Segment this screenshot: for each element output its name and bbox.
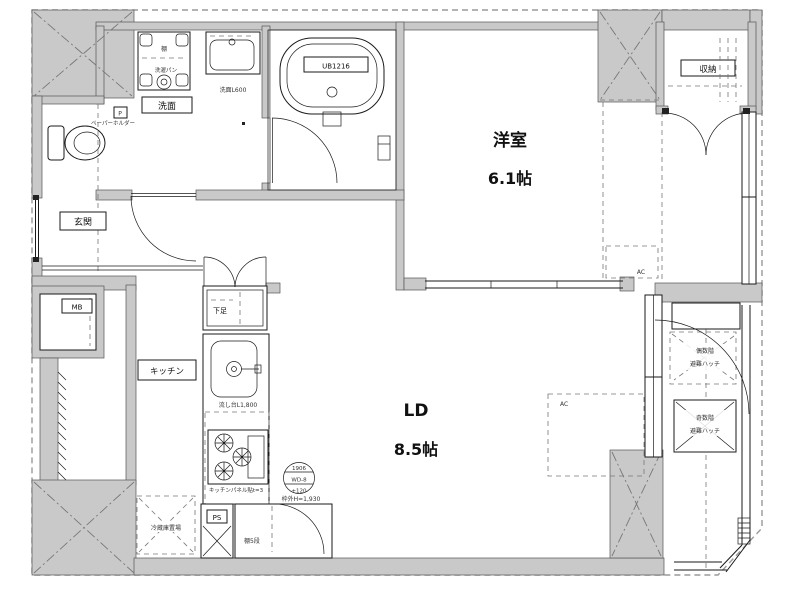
door-code-top: 1906 bbox=[292, 466, 306, 472]
washroom-door-swing bbox=[131, 196, 196, 261]
wall-balcony-top bbox=[655, 283, 762, 302]
toilet-tank bbox=[48, 126, 64, 160]
bath-controller bbox=[378, 136, 390, 160]
wall-bath-western bbox=[396, 22, 404, 290]
door-code-bottom: +120 bbox=[291, 489, 307, 495]
ac-position-west bbox=[606, 246, 658, 278]
wall-washroom-left bbox=[96, 26, 104, 104]
bath: UB1216 bbox=[268, 30, 396, 190]
wall-wash-bath-top bbox=[262, 26, 270, 118]
shelf-5tier-label: 棚5段 bbox=[244, 537, 260, 545]
meter-box: MB bbox=[40, 294, 96, 350]
hatch-even-line1: 偶数階 bbox=[696, 347, 714, 355]
living-dining: LD 8.5帖 AC bbox=[394, 295, 662, 476]
kitchen-panel-label: キッチンパネル貼t=3 bbox=[209, 486, 264, 494]
storage-closet: 収納 bbox=[662, 38, 750, 155]
western-room: 洋室 6.1帖 AC bbox=[425, 100, 756, 288]
paper-holder-abbr: P bbox=[118, 111, 122, 118]
floor-plan-page: 棚 洗濯パン 洗面 洗面L600 P ペーパーホルダー UB1216 bbox=[0, 0, 789, 593]
ps-label: PS bbox=[213, 514, 222, 522]
balcony-equipment-pad bbox=[672, 303, 740, 329]
toilet-bowl bbox=[65, 126, 105, 160]
storage-door-swing-l bbox=[664, 113, 706, 155]
balcony: 偶数階 避難ハッチ 奇数階 避難ハッチ bbox=[655, 302, 750, 572]
door-frame-height: 枠外H=1,930 bbox=[282, 495, 321, 503]
fridge-space-label: 冷蔵庫置場 bbox=[151, 524, 181, 532]
wall-toilet-top bbox=[32, 96, 104, 104]
bathtub-outer bbox=[280, 38, 384, 114]
hatch-even-line2: 避難ハッチ bbox=[690, 360, 720, 368]
hatch-odd-line1: 奇数階 bbox=[696, 414, 714, 422]
ld-label: LD bbox=[404, 401, 429, 421]
wall-ld-left bbox=[126, 285, 136, 485]
vent-grill-lines bbox=[738, 523, 750, 538]
wall-washroom-bottom-l bbox=[96, 190, 132, 200]
walls bbox=[32, 10, 762, 575]
kitchen-label: キッチン bbox=[150, 367, 184, 377]
washroom: 棚 洗濯パン 洗面 洗面L600 bbox=[138, 32, 260, 125]
shoe-door-swing-l bbox=[204, 257, 235, 287]
vent-grill bbox=[738, 518, 750, 544]
laundry-shelf-label: 棚 bbox=[161, 45, 167, 53]
toilet: P ペーパーホルダー bbox=[48, 104, 135, 272]
washroom-label: 洗面 bbox=[158, 100, 176, 112]
wall-top-band bbox=[96, 22, 662, 30]
mb-label: MB bbox=[72, 304, 83, 312]
ld-size: 8.5帖 bbox=[394, 440, 438, 459]
western-room-size: 6.1帖 bbox=[488, 169, 532, 188]
floor-drain-dot bbox=[242, 122, 245, 125]
hatch-odd-line2: 避難ハッチ bbox=[690, 427, 720, 435]
unit-bath-label: UB1216 bbox=[322, 63, 350, 71]
wall-left-corridor bbox=[40, 358, 58, 482]
door-code-mid: WD-8 bbox=[291, 478, 307, 484]
western-room-label: 洋室 bbox=[493, 130, 527, 151]
wall-partition-stub-l bbox=[404, 278, 426, 290]
bath-door-swing bbox=[272, 118, 337, 183]
railing-chamfer-outer bbox=[726, 540, 750, 572]
laundry-pan-label: 洗濯パン bbox=[155, 66, 178, 74]
entrance: 玄関 bbox=[33, 194, 203, 271]
ac-ld-label: AC bbox=[560, 401, 568, 408]
storage-door-hinge-l bbox=[662, 108, 669, 114]
wall-storage-left bbox=[656, 22, 664, 110]
wall-bottom-band bbox=[134, 558, 664, 575]
wall-storage-top bbox=[662, 10, 750, 30]
ac-west-label: AC bbox=[637, 269, 645, 276]
shelf-closet bbox=[235, 504, 332, 558]
kitchen-sink-label: 流し台L1,800 bbox=[219, 401, 258, 409]
wall-left-upper bbox=[32, 96, 42, 198]
wall-washroom-bottom-r bbox=[196, 190, 404, 200]
entrance-label: 玄関 bbox=[74, 216, 92, 228]
kitchen: 下足 流し台L1,800 キッチンパネル貼t=3 キッチン 1906 WD-8 bbox=[137, 257, 332, 558]
shoe-cabinet-label: 下足 bbox=[213, 307, 227, 315]
wall-shoe-stub bbox=[266, 283, 280, 293]
wall-storage-right bbox=[748, 22, 756, 110]
front-door-hinge2 bbox=[33, 257, 39, 262]
laundry-pan bbox=[138, 32, 190, 90]
shoe-door-swing-r bbox=[235, 257, 266, 287]
front-door-hinge bbox=[33, 195, 39, 200]
floor-plan-drawing: 棚 洗濯パン 洗面 洗面L600 P ペーパーホルダー UB1216 bbox=[0, 0, 789, 593]
wall-hatching bbox=[58, 372, 66, 480]
vanity-label: 洗面L600 bbox=[220, 86, 247, 94]
wall-partition-stub-r bbox=[620, 277, 634, 291]
storage-label: 収納 bbox=[699, 64, 716, 75]
storage-door-hinge-r bbox=[743, 108, 750, 114]
